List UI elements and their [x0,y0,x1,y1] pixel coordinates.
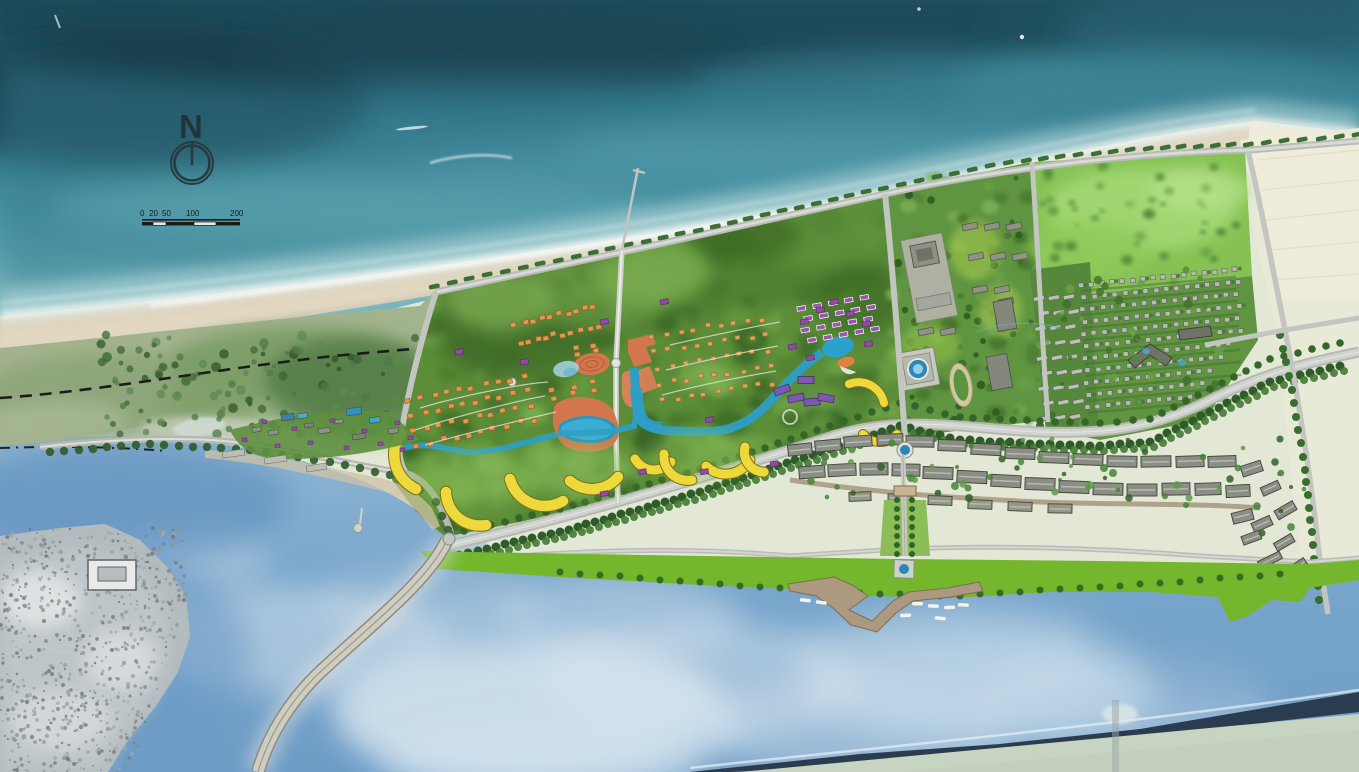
svg-text:N: N [179,108,203,145]
svg-text:200: 200 [230,209,244,218]
svg-text:100: 100 [186,209,200,218]
svg-text:20: 20 [149,209,158,218]
svg-text:50: 50 [162,209,171,218]
svg-text:0: 0 [140,209,145,218]
